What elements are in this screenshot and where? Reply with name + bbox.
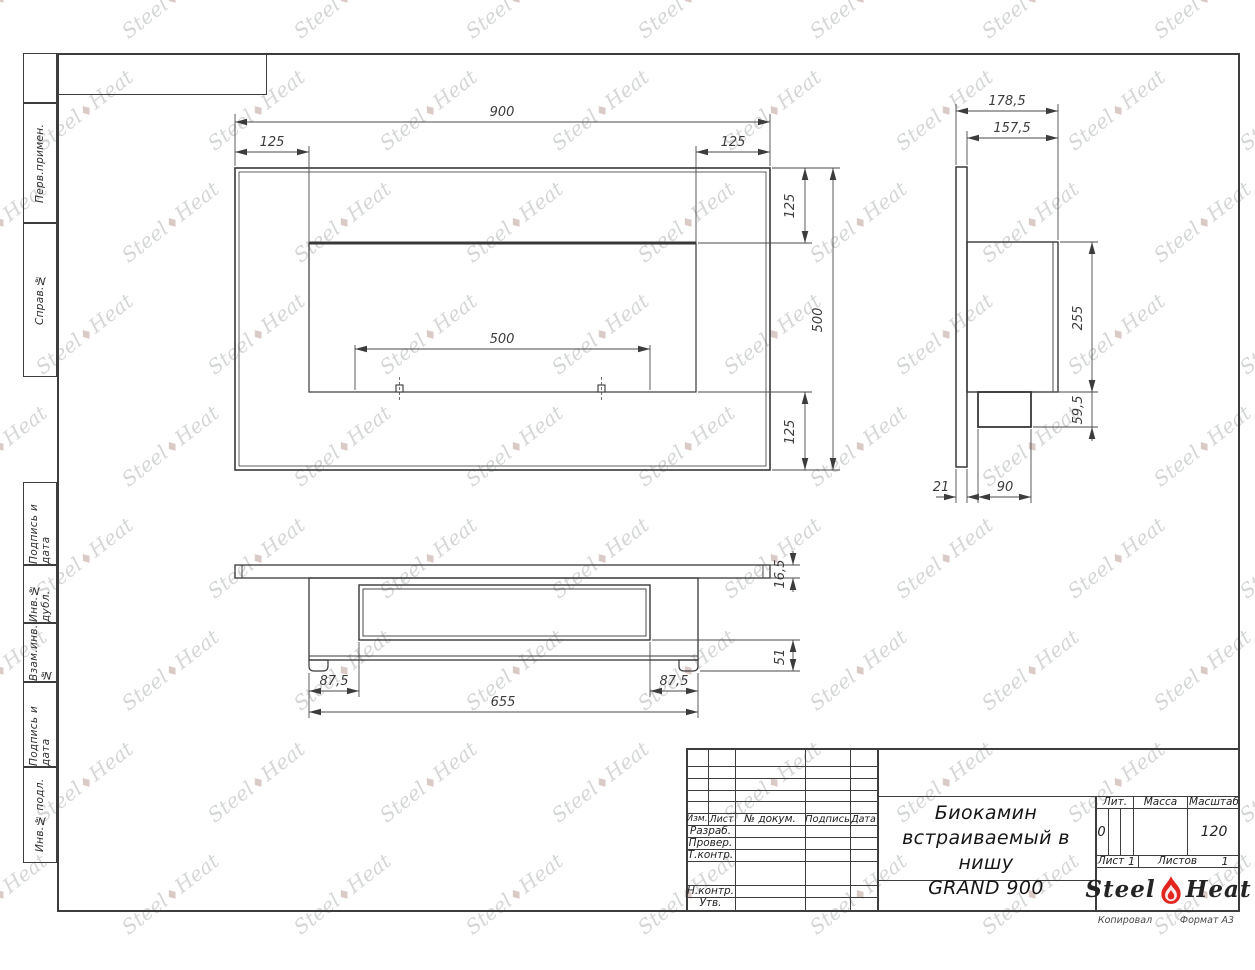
row-razrab: Разраб. <box>686 825 735 837</box>
left-margin-label: Инв.№ подл. <box>24 768 56 862</box>
sheet-label: Лист <box>1097 855 1125 867</box>
brand-logo: Steel Heat <box>1097 867 1240 912</box>
product-title-line2: встраиваемый в нишу <box>879 826 1093 876</box>
change-col-podpis: Подпись <box>805 813 850 825</box>
lit-label: Лит. <box>1097 796 1133 808</box>
left-margin-cell-sprav-no: Справ.№ <box>23 223 57 377</box>
left-margin-empty-cell <box>23 53 57 103</box>
product-title-line1: Биокамин <box>879 801 1093 826</box>
product-title: Биокамин встраиваемый в нишу GRAND 900 <box>879 801 1093 901</box>
row-prover: Провер. <box>686 837 735 849</box>
sheet-value: 1 <box>1125 855 1138 867</box>
change-col-docnum: № докум. <box>735 813 805 825</box>
scale-value: 120 <box>1188 820 1240 844</box>
row-utv: Утв. <box>686 897 735 909</box>
drawing-sheet: Steel♦HeatSteel♦HeatSteel♦HeatSteel♦Heat… <box>0 0 1255 970</box>
left-margin-label: Подпись и дата <box>24 483 56 564</box>
left-margin-label: Подпись и дата <box>24 683 56 766</box>
row-nkontr: Н.контр. <box>686 885 735 897</box>
change-col-list: Лист <box>708 813 735 825</box>
flame-icon <box>1160 875 1182 905</box>
mass-label: Масса <box>1134 796 1187 808</box>
brand-logo-heat: Heat <box>1186 876 1252 903</box>
scale-label: Масштаб <box>1188 796 1240 808</box>
sheets-label: Листов <box>1150 855 1205 867</box>
row-tkontr: Т.контр. <box>686 849 735 861</box>
change-col-data: Дата <box>850 813 877 825</box>
left-margin-label: Инв.№ дубл. <box>24 566 56 622</box>
sheets-value: 1 <box>1215 855 1235 867</box>
top-left-stamp-box <box>57 53 267 95</box>
left-margin-label: Перв.примен. <box>24 104 56 222</box>
format-note: Формат А3 <box>1178 915 1234 926</box>
left-margin-cell-perv-primen: Перв.примен. <box>23 103 57 223</box>
left-margin-cell-vzam-inv: Взам.инв.№ <box>23 623 57 682</box>
left-margin-cell-podpis-data-2: Подпись и дата <box>23 682 57 767</box>
brand-logo-steel: Steel <box>1085 876 1155 903</box>
left-margin-cell-inv-dubl: Инв.№ дубл. <box>23 565 57 623</box>
copied-note: Копировал <box>1095 915 1155 926</box>
left-margin-cell-podpis-data-1: Подпись и дата <box>23 482 57 565</box>
left-margin-cell-inv-podl: Инв.№ подл. <box>23 767 57 863</box>
change-col-izm: Изм. <box>686 813 708 825</box>
left-margin-label: Справ.№ <box>24 224 56 376</box>
product-title-line3: GRAND 900 <box>879 876 1093 901</box>
left-margin-label: Взам.инв.№ <box>24 624 56 681</box>
lit-value: 0 <box>1095 820 1108 844</box>
